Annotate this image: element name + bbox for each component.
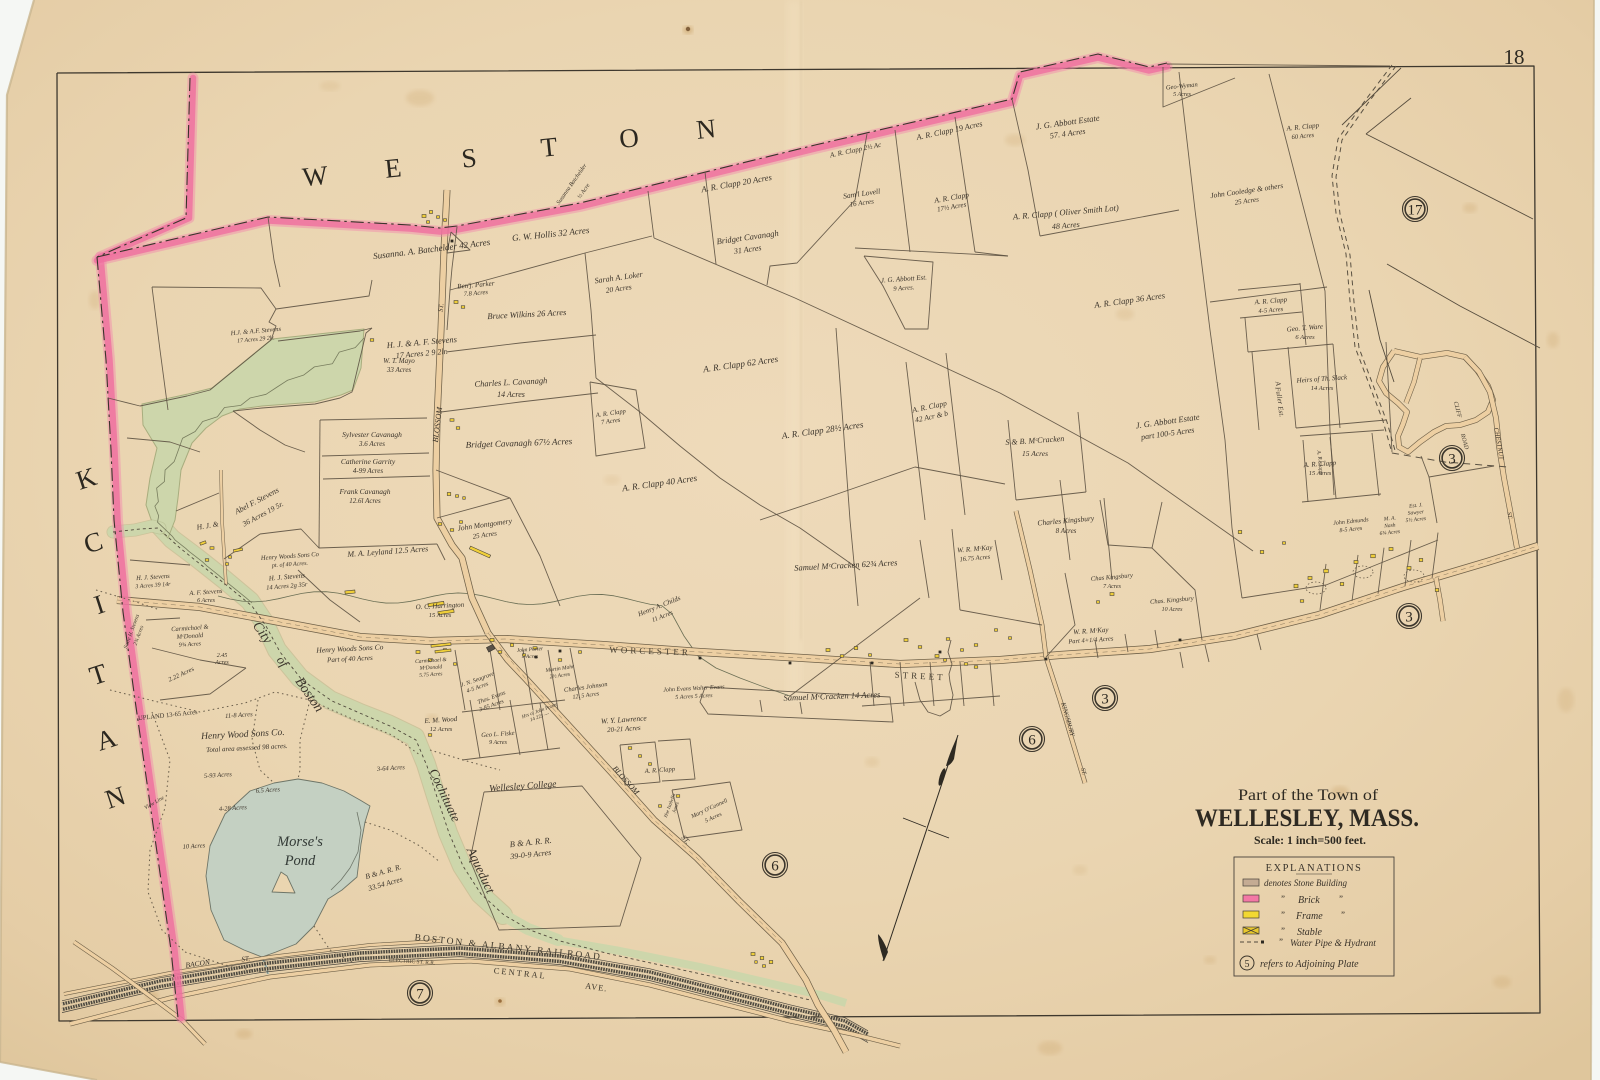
svg-text:9 Acres.: 9 Acres. (893, 284, 915, 292)
svg-text:6: 6 (771, 858, 779, 874)
svg-text:3: 3 (1101, 691, 1109, 707)
svg-text:12 Acres: 12 Acres (430, 726, 453, 733)
svg-text:EXPLANATIONS: EXPLANATIONS (1266, 863, 1363, 874)
svg-text:7 Acres: 7 Acres (1103, 584, 1121, 590)
svg-text:W. T. Mayo: W. T. Mayo (383, 357, 415, 365)
svg-text:33 Acres: 33 Acres (386, 366, 412, 374)
svg-text:5: 5 (1245, 959, 1250, 970)
svg-text:17: 17 (1408, 202, 1424, 218)
svg-text:Water Pipe & Hydrant: Water Pipe & Hydrant (1290, 939, 1376, 949)
svg-text:2.45: 2.45 (217, 652, 228, 659)
svg-text:Frank Cavanagh: Frank Cavanagh (338, 487, 390, 496)
svg-text:Catherine Garrity: Catherine Garrity (341, 457, 396, 466)
svg-text:9 Acres: 9 Acres (489, 740, 507, 746)
svg-text:”: ” (1338, 894, 1343, 904)
svg-text:O: O (618, 122, 641, 154)
svg-text:Pond: Pond (284, 853, 316, 869)
svg-text:6: 6 (1028, 732, 1036, 748)
svg-text:denotes Stone Building: denotes Stone Building (1264, 878, 1347, 888)
svg-text:WELLESLEY, MASS.: WELLESLEY, MASS. (1195, 805, 1419, 832)
svg-text:Stable: Stable (1297, 927, 1323, 938)
svg-text:W: W (301, 160, 330, 193)
svg-text:Morse's: Morse's (276, 834, 323, 850)
svg-text:ST.: ST. (241, 954, 251, 963)
svg-text:Part of the Town of: Part of the Town of (1238, 787, 1379, 804)
svg-text:”: ” (1340, 910, 1345, 920)
svg-text:7: 7 (416, 986, 424, 1002)
svg-text:ST.: ST. (437, 303, 446, 313)
svg-text:3.6 Acres: 3.6 Acres (358, 440, 385, 448)
svg-text:14 Acres: 14 Acres (1311, 385, 1334, 392)
svg-text:Sylvester Cavanagh: Sylvester Cavanagh (342, 430, 402, 439)
svg-text:6 Acres: 6 Acres (197, 598, 215, 604)
svg-text:”: ” (1280, 926, 1285, 936)
svg-text:Scale: 1 inch=500 feet.: Scale: 1 inch=500 feet. (1254, 835, 1366, 847)
svg-text:10 Acres: 10 Acres (1162, 607, 1183, 613)
svg-text:Brick: Brick (1298, 895, 1320, 906)
svg-text:3: 3 (1405, 609, 1413, 625)
svg-text:3: 3 (1448, 451, 1456, 467)
svg-text:S: S (460, 142, 478, 173)
svg-text:Frame: Frame (1295, 911, 1323, 922)
svg-text:12.6l Acres: 12.6l Acres (349, 497, 381, 505)
svg-text:”: ” (1280, 894, 1285, 904)
svg-text:18: 18 (1504, 45, 1525, 69)
svg-text:”: ” (1278, 937, 1283, 947)
svg-text:Acres: Acres (214, 660, 229, 666)
svg-text:15 Acres: 15 Acres (1022, 449, 1048, 458)
svg-text:3 Acres: 3 Acres (521, 654, 538, 660)
svg-text:N: N (695, 113, 718, 145)
svg-text:14 Acres: 14 Acres (497, 390, 525, 399)
svg-text:6 Acres: 6 Acres (1295, 334, 1315, 341)
svg-text:”: ” (1280, 910, 1285, 920)
svg-text:4-99 Acres: 4-99 Acres (353, 467, 383, 475)
svg-text:8 Acres: 8 Acres (1056, 527, 1077, 535)
svg-text:refers to Adjoining Plate: refers to Adjoining Plate (1260, 959, 1359, 970)
svg-text:5 Acres: 5 Acres (1173, 92, 1191, 98)
svg-text:15 Acres: 15 Acres (429, 612, 452, 619)
svg-text:E: E (383, 152, 403, 184)
svg-text:ST.: ST. (1505, 512, 1512, 520)
